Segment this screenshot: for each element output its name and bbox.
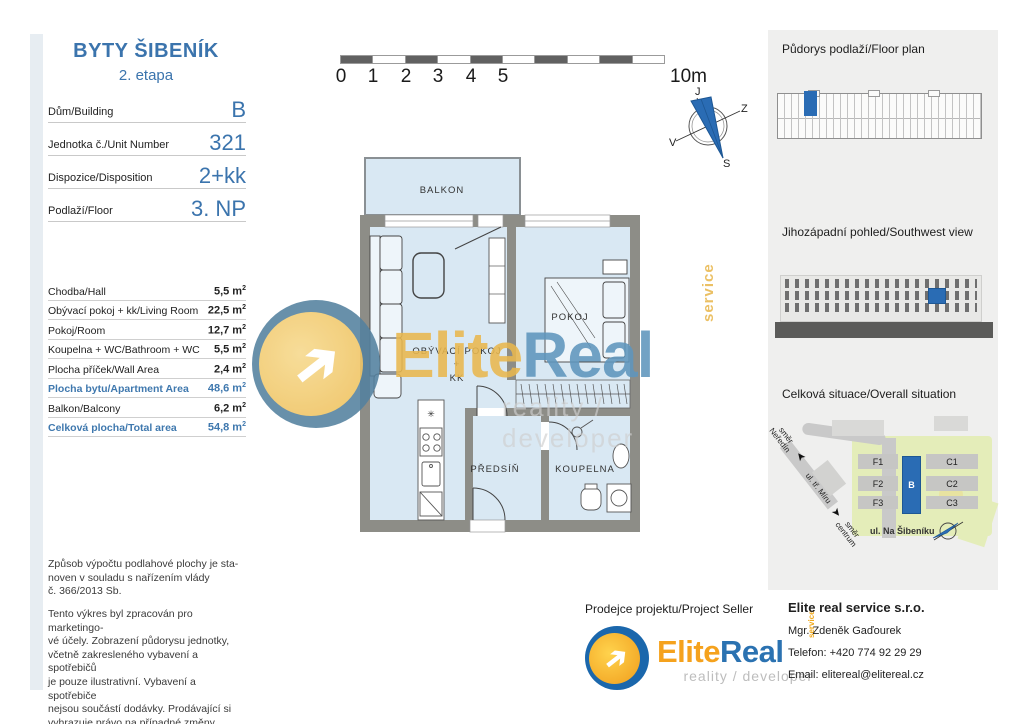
info-label: Dispozice/Disposition — [48, 172, 153, 187]
contact-email: Email: elitereal@elitereal.cz — [788, 669, 998, 681]
area-label: Plocha příček/Wall Area — [48, 364, 159, 378]
area-label: Balkon/Balcony — [48, 403, 120, 417]
area-row-walls: Plocha příček/Wall Area 2,4 m2 — [48, 359, 246, 379]
elevation-base — [775, 322, 993, 338]
info-value: B — [231, 99, 246, 121]
map-building-c3: C3 — [926, 496, 978, 509]
info-value: 321 — [209, 132, 246, 154]
building-floorplan-thumbnail — [777, 93, 982, 139]
window-row — [785, 279, 977, 288]
map-building — [934, 416, 968, 431]
scale-tick: 3 — [430, 66, 446, 88]
seller-section-title: Prodejce projektu/Project Seller — [585, 602, 753, 616]
area-row-grand-total: Celková plocha/Total area 54,8 m2 — [48, 418, 246, 438]
info-label: Dům/Building — [48, 106, 113, 121]
area-row-hall: Chodba/Hall 5,5 m2 — [48, 281, 246, 301]
toilet — [581, 488, 601, 510]
cabinet — [489, 238, 505, 323]
coffee-table — [413, 253, 444, 298]
window-row — [785, 303, 977, 312]
area-label: Koupelna + WC/Bathroom + WC — [48, 344, 200, 358]
info-value: 3. NP — [191, 198, 246, 220]
info-row-floor: Podlaží/Floor 3. NP — [48, 189, 246, 222]
elitereal-wordmark: EliteReal — [657, 634, 783, 670]
elitereal-logo-icon: ➔ — [585, 626, 649, 690]
scale-tick: 4 — [463, 66, 479, 88]
area-row-room: Pokoj/Room 12,7 m2 — [48, 320, 246, 340]
area-row-bathroom: Koupelna + WC/Bathroom + WC 5,5 m2 — [48, 340, 246, 360]
disclaimer-paragraph-1: Způsob výpočtu podlahové plochy je sta- … — [48, 558, 240, 599]
map-building-c1: C1 — [926, 454, 978, 469]
info-row-disposition: Dispozice/Disposition 2+kk — [48, 156, 246, 189]
area-label: Obývací pokoj + kk/Living Room — [48, 305, 198, 319]
map-building — [832, 420, 884, 436]
company-name: Elite real service s.r.o. — [788, 600, 998, 615]
room-label-hall: PŘEDSÍŇ — [470, 464, 519, 475]
contact-phone: Telefon: +420 774 92 29 29 — [788, 647, 998, 659]
area-value: 5,5 m2 — [214, 285, 246, 300]
scale-tick: 0 — [333, 66, 349, 88]
area-value: 2,4 m2 — [214, 363, 246, 378]
room-label-plus: + — [454, 359, 461, 370]
apartment-datasheet: BYTY ŠIBENÍK 2. etapa Dům/Building B Jed… — [0, 0, 1024, 724]
area-value: 12,7 m2 — [208, 324, 246, 339]
area-value: 22,5 m2 — [208, 304, 246, 319]
legal-disclaimer: Způsob výpočtu podlahové plochy je sta- … — [48, 558, 240, 724]
info-row-building: Dům/Building B — [48, 90, 246, 123]
area-row-living: Obývací pokoj + kk/Living Room 22,5 m2 — [48, 301, 246, 321]
washbasin — [613, 444, 629, 468]
compass-west-label: Z — [741, 103, 748, 115]
area-label: Plocha bytu/Apartment Area — [48, 383, 189, 397]
contact-block: Elite real service s.r.o. Mgr. Zdeněk Ga… — [788, 600, 998, 691]
info-value: 2+kk — [199, 165, 246, 187]
scale-bar — [340, 55, 665, 64]
info-label: Jednotka č./Unit Number — [48, 139, 169, 154]
unit-info-table: Dům/Building B Jednotka č./Unit Number 3… — [48, 90, 246, 222]
map-building-f3: F3 — [858, 496, 898, 509]
southwest-elevation-thumbnail — [780, 275, 982, 322]
plan-bump — [928, 90, 940, 97]
disclaimer-paragraph-2: Tento výkres byl zpracován pro marketing… — [48, 608, 240, 724]
areas-table: Chodba/Hall 5,5 m2 Obývací pokoj + kk/Li… — [48, 281, 246, 437]
sofa — [370, 236, 402, 398]
map-building-f1: F1 — [858, 454, 898, 469]
armchair — [374, 374, 401, 398]
compass-north-label: S — [723, 158, 730, 168]
info-row-unit-number: Jednotka č./Unit Number 321 — [48, 123, 246, 156]
wardrobe — [516, 380, 630, 408]
info-label: Podlaží/Floor — [48, 205, 113, 220]
map-street-label: ul. Na Šibeníku — [870, 526, 935, 536]
section-title-elevation: Jihozápadní pohled/Southwest view — [782, 225, 973, 239]
area-value: 54,8 m2 — [208, 421, 246, 436]
project-title: BYTY ŠIBENÍK — [46, 40, 246, 63]
room-label-balcony: BALKON — [420, 185, 465, 196]
stove-symbol: ✳ — [427, 409, 435, 419]
window-row — [785, 291, 977, 300]
room-label-living: OBÝVACÍ POKOJ — [412, 346, 501, 357]
scale-tick: 5 — [495, 66, 511, 88]
contact-person: Mgr. Zdeněk Gaďourek — [788, 625, 998, 637]
area-row-apartment-total: Plocha bytu/Apartment Area 48,6 m2 — [48, 379, 246, 399]
highlighted-window-marker — [928, 288, 946, 304]
map-building-c2: C2 — [926, 476, 978, 491]
apartment-floor-plan: ✳ — [345, 148, 655, 548]
compass-east-label: V — [669, 137, 677, 149]
map-building-b-highlighted: B — [902, 456, 921, 514]
watermark-service-label: service — [700, 263, 717, 322]
area-value: 6,2 m2 — [214, 402, 246, 417]
room-label-bedroom: POKOJ — [551, 312, 588, 323]
nightstand — [603, 260, 627, 274]
section-title-floorplan: Půdorys podlaží/Floor plan — [782, 42, 925, 56]
map-building-f2: F2 — [858, 476, 898, 491]
area-value: 48,6 m2 — [208, 382, 246, 397]
highlighted-unit-marker — [804, 91, 817, 116]
area-label: Celková plocha/Total area — [48, 422, 177, 436]
area-label: Chodba/Hall — [48, 286, 106, 300]
project-stage: 2. etapa — [46, 67, 246, 84]
right-sidebar: Půdorys podlaží/Floor plan Jihozápadní p… — [768, 30, 998, 590]
site-map: F1 F2 F3 B C1 C2 C3 ul. Na Šibeníku směr… — [774, 398, 994, 548]
left-accent-strip — [30, 34, 43, 690]
room-label-kk: KK — [450, 373, 465, 384]
room-label-bathroom: KOUPELNA — [555, 464, 615, 475]
compass-south-label: J — [695, 86, 701, 98]
area-value: 5,5 m2 — [214, 343, 246, 358]
map-compass-icon — [932, 518, 966, 546]
plan-bump — [868, 90, 880, 97]
area-label: Pokoj/Room — [48, 325, 105, 339]
compass-rose: J Z V S — [666, 84, 750, 168]
scale-tick: 2 — [398, 66, 414, 88]
logo-arrow-icon: ➔ — [587, 631, 645, 687]
scale-tick: 1 — [365, 66, 381, 88]
area-row-balcony: Balkon/Balcony 6,2 m2 — [48, 398, 246, 418]
